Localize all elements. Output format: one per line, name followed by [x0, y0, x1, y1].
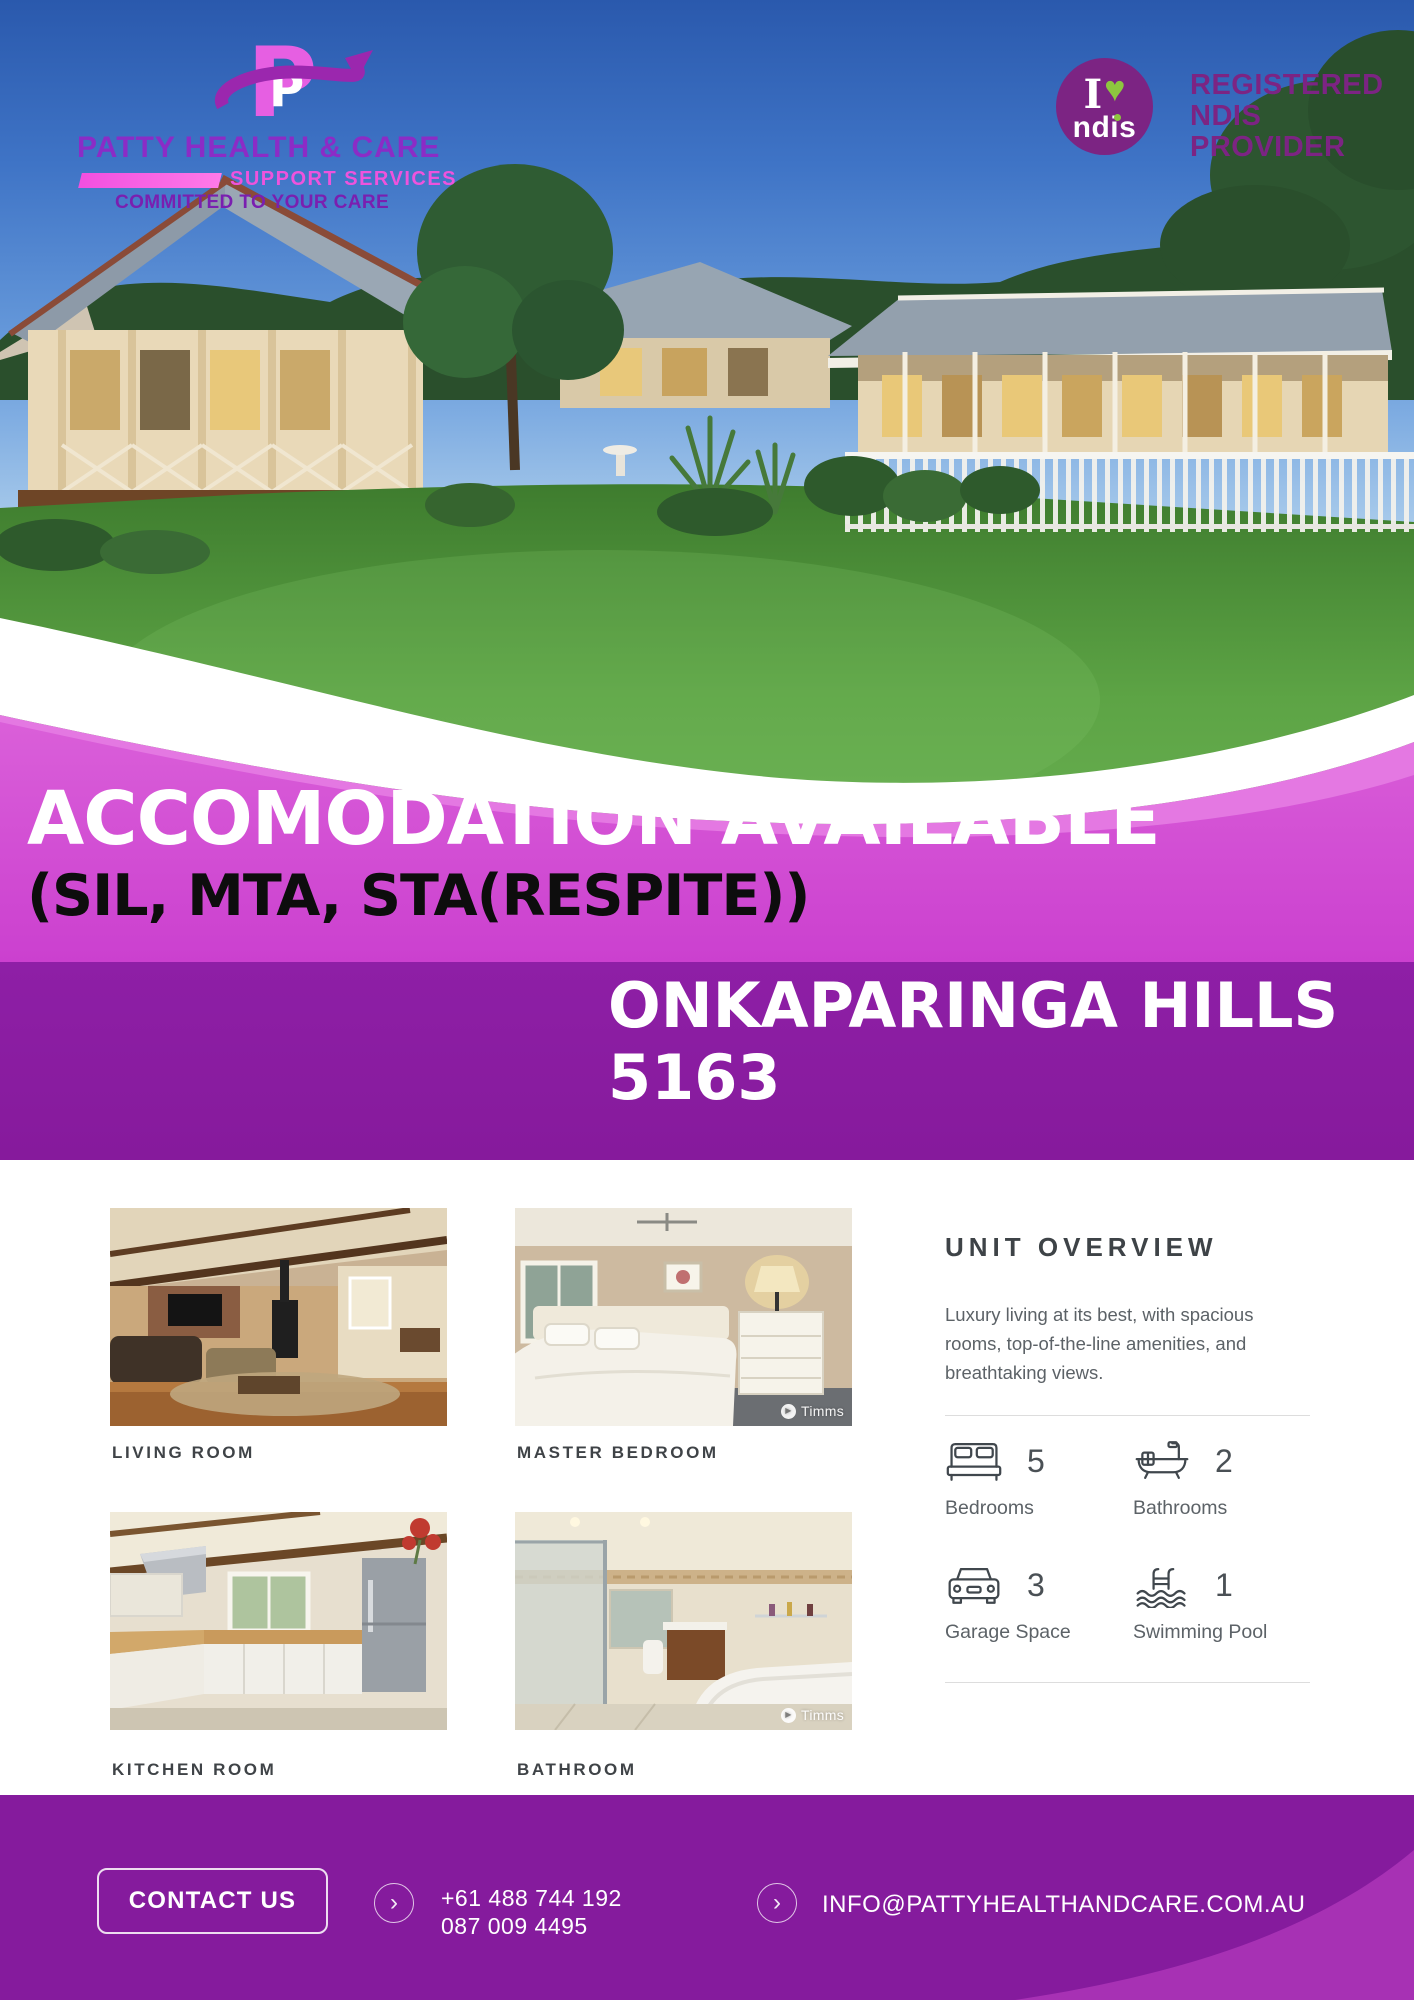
- footer-contact-bar: CONTACT US › +61 488 744 192 087 009 449…: [0, 1795, 1414, 2000]
- ndis-i-dot: [1114, 114, 1121, 121]
- divider: [945, 1415, 1310, 1416]
- phone-chevron-icon[interactable]: ›: [374, 1883, 414, 1923]
- pool-label: Swimming Pool: [1133, 1621, 1313, 1644]
- brand-name: PATTY HEALTH & CARE: [77, 131, 440, 165]
- phone-numbers[interactable]: +61 488 744 192 087 009 4495: [441, 1884, 622, 1940]
- ndis-i-letter: I: [1083, 75, 1102, 115]
- car-icon: [945, 1562, 1003, 1608]
- master-bedroom-label: MASTER BEDROOM: [517, 1443, 719, 1463]
- bathrooms-label: Bathrooms: [1133, 1497, 1313, 1520]
- bedrooms-label: Bedrooms: [945, 1497, 1125, 1520]
- master-bedroom-photo: ▶ Timms: [515, 1208, 852, 1426]
- bathroom-photo: ▶ Timms: [515, 1512, 852, 1730]
- brand-accent-bar: [78, 173, 222, 188]
- timms-watermark: ▶ Timms: [781, 1403, 844, 1419]
- divider: [945, 1682, 1310, 1683]
- feature-pool: 1 Swimming Pool: [1133, 1562, 1313, 1644]
- bathroom-label: BATHROOM: [517, 1760, 637, 1780]
- brand-logo-mark: P P: [205, 28, 380, 136]
- garage-label: Garage Space: [945, 1621, 1125, 1644]
- brand-tagline: SUPPORT SERVICES: [230, 168, 457, 191]
- brand-motto: COMMITTED TO YOUR CARE: [115, 192, 389, 214]
- ndis-wordmark: ndis: [1073, 113, 1137, 143]
- hero-section: P P PATTY HEALTH & CARE SUPPORT SERVICES…: [0, 0, 1414, 962]
- kitchen-label: KITCHEN ROOM: [112, 1760, 276, 1780]
- email-address[interactable]: INFO@PATTYHEALTHANDCARE.COM.AU: [822, 1891, 1305, 1919]
- registered-ndis-provider-label: REGISTERED NDIS PROVIDER: [1190, 70, 1384, 163]
- kitchen-photo: [110, 1512, 447, 1730]
- feature-garage: 3 Garage Space: [945, 1562, 1125, 1644]
- feature-bedrooms: 5 Bedrooms: [945, 1438, 1125, 1520]
- living-room-photo: [110, 1208, 447, 1426]
- bedrooms-count: 5: [1027, 1443, 1045, 1480]
- garage-count: 3: [1027, 1567, 1045, 1604]
- bed-icon: [945, 1438, 1003, 1484]
- unit-overview-description: Luxury living at its best, with spacious…: [945, 1300, 1290, 1387]
- pool-icon: [1133, 1562, 1191, 1608]
- location-title: ONKAPARINGA HILLS 5163: [608, 970, 1338, 1114]
- phone-line-2: 087 009 4495: [441, 1912, 622, 1940]
- ndis-logo-circle: I ♥ ndis: [1056, 58, 1153, 155]
- location-banner: ONKAPARINGA HILLS 5163: [0, 962, 1414, 1160]
- accommodation-headline: ACCOMODATION AVAILABLE: [27, 782, 1160, 856]
- contact-us-button[interactable]: CONTACT US: [97, 1868, 328, 1934]
- play-icon: ▶: [781, 1404, 796, 1419]
- feature-bathrooms: 2 Bathrooms: [1133, 1438, 1313, 1520]
- heart-icon: ♥: [1104, 71, 1125, 107]
- bathtub-icon: [1133, 1438, 1191, 1484]
- play-icon: ▶: [781, 1708, 796, 1723]
- living-room-label: LIVING ROOM: [112, 1443, 255, 1463]
- unit-overview-title: UNIT OVERVIEW: [945, 1232, 1218, 1263]
- bathrooms-count: 2: [1215, 1443, 1233, 1480]
- timms-watermark: ▶ Timms: [781, 1707, 844, 1723]
- email-chevron-icon[interactable]: ›: [757, 1883, 797, 1923]
- pool-count: 1: [1215, 1567, 1233, 1604]
- phone-line-1: +61 488 744 192: [441, 1884, 622, 1912]
- accommodation-subheadline: (SIL, MTA, STA(RESPITE)): [27, 868, 809, 925]
